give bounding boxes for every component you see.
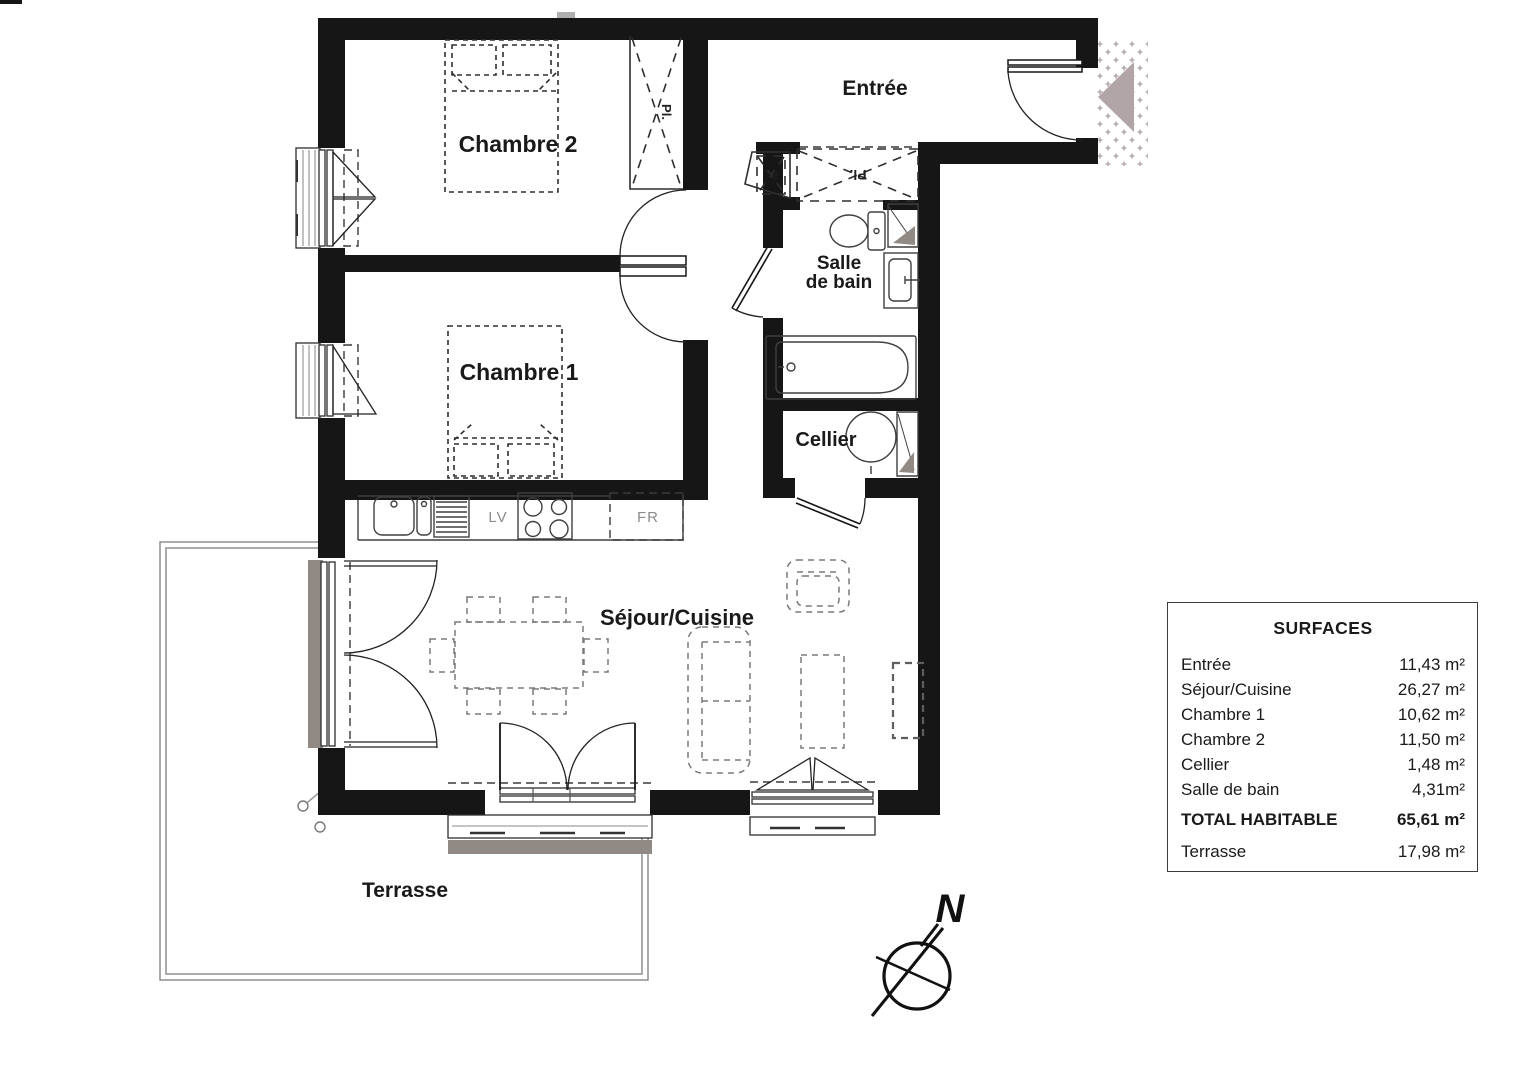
closet-label-entree: Pl.: [849, 167, 866, 183]
window-chambre2: [296, 148, 375, 248]
surfaces-row-salle-de-bain: Salle de bain 4,31m²: [1181, 777, 1465, 802]
compass: N: [872, 887, 966, 1016]
dishwasher-label: LV: [488, 509, 507, 526]
surfaces-row-value: 11,50 m²: [1399, 727, 1465, 752]
room-label-salle-de-bain-1: Salle: [817, 253, 861, 274]
surfaces-row-terrasse: Terrasse 17,98 m²: [1181, 839, 1465, 864]
room-label-chambre1: Chambre 1: [460, 359, 579, 385]
washbasin: [884, 253, 920, 308]
surfaces-row-label: Terrasse: [1181, 839, 1246, 864]
technical-shaft-wc: [888, 204, 918, 247]
surfaces-row-label: TOTAL HABITABLE: [1181, 807, 1337, 832]
surfaces-row-label: Séjour/Cuisine: [1181, 677, 1292, 702]
surfaces-row-entree: Entrée 11,43 m²: [1181, 652, 1465, 677]
door-bathroom: [732, 246, 772, 317]
surfaces-row-chambre2: Chambre 2 11,50 m²: [1181, 727, 1465, 752]
armchair: [787, 560, 849, 612]
room-label-terrasse: Terrasse: [362, 879, 448, 902]
surfaces-table: SURFACES Entrée 11,43 m² Séjour/Cuisine …: [1167, 602, 1478, 872]
closet-label-chambre2: Pl.: [659, 104, 674, 120]
window-chambre1: [296, 343, 376, 418]
door-cellier: [796, 498, 865, 528]
surfaces-row-total-habitable: TOTAL HABITABLE 65,61 m²: [1181, 807, 1465, 832]
surfaces-row-value: 10,62 m²: [1398, 702, 1465, 727]
surfaces-row-value: 26,27 m²: [1398, 677, 1465, 702]
surfaces-row-value: 17,98 m²: [1398, 839, 1465, 864]
french-door-sejour-west: [308, 560, 437, 748]
floorplan-drawing: N Entrée Chambre 2 Chambre 1 Salle de ba…: [0, 0, 1525, 1080]
surfaces-row-value: 1,48 m²: [1407, 752, 1465, 777]
north-letter: N: [936, 887, 966, 931]
room-label-sejour-cuisine: Séjour/Cuisine: [600, 605, 754, 630]
fridge-label: FR: [637, 509, 659, 526]
closet-chambre2: [630, 36, 683, 189]
window-sejour-south: [750, 758, 876, 835]
bathtub: [766, 336, 916, 399]
surfaces-row-chambre1: Chambre 1 10,62 m²: [1181, 702, 1465, 727]
entrance-marker: [1096, 40, 1148, 166]
closet-label-entree-small: Pl.: [766, 170, 777, 180]
room-label-entree: Entrée: [842, 77, 907, 100]
room-label-cellier: Cellier: [795, 429, 856, 451]
surfaces-row-label: Chambre 2: [1181, 727, 1265, 752]
door-chambre2: [620, 190, 686, 265]
surfaces-row-value: 65,61 m²: [1397, 807, 1465, 832]
surfaces-row-sejour-cuisine: Séjour/Cuisine 26,27 m²: [1181, 677, 1465, 702]
edge-artifacts: [0, 0, 575, 18]
bed-chambre2: [445, 40, 558, 192]
floorplan-page: N Entrée Chambre 2 Chambre 1 Salle de ba…: [0, 0, 1525, 1080]
surfaces-row-label: Chambre 1: [1181, 702, 1265, 727]
kitchen-counter: [358, 493, 683, 540]
coffee-table: [801, 655, 844, 748]
surfaces-table-title: SURFACES: [1181, 618, 1465, 639]
dining-set: [430, 597, 608, 714]
door-chambre1: [620, 267, 686, 342]
surfaces-row-value: 11,43 m²: [1399, 652, 1465, 677]
room-label-chambre2: Chambre 2: [459, 131, 578, 157]
surfaces-row-label: Cellier: [1181, 752, 1229, 777]
surfaces-row-label: Entrée: [1181, 652, 1231, 677]
surfaces-row-label: Salle de bain: [1181, 777, 1279, 802]
surfaces-row-cellier: Cellier 1,48 m²: [1181, 752, 1465, 777]
entrance-door: [1008, 60, 1082, 140]
toilet: [830, 212, 885, 250]
bed-chambre1: [448, 326, 562, 478]
technical-shaft-cellier: [897, 412, 918, 476]
surfaces-row-value: 4,31m²: [1412, 777, 1465, 802]
french-door-sejour-south: [448, 723, 652, 854]
room-label-salle-de-bain-2: de bain: [806, 272, 873, 293]
sofa: [688, 627, 750, 773]
